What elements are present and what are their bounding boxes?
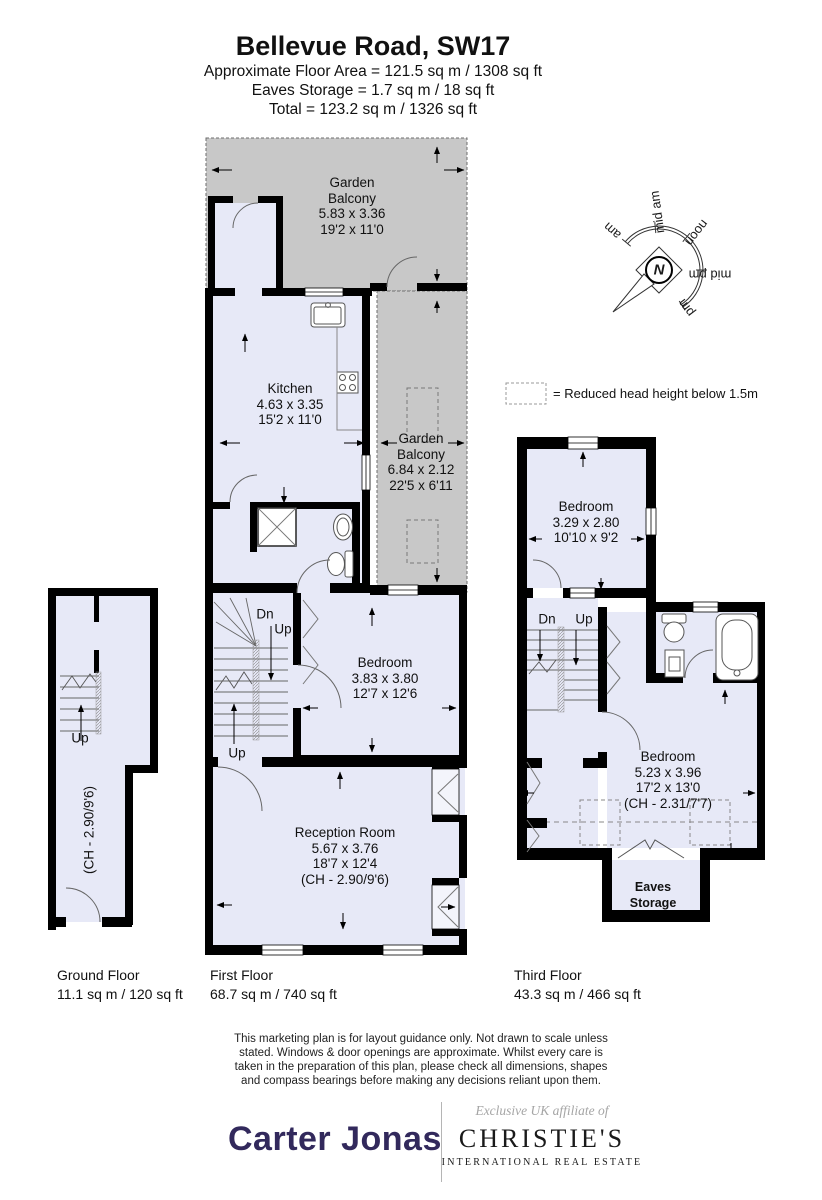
bathtub-icon (716, 614, 758, 680)
washbasin-icon-2 (665, 650, 684, 677)
toilet-icon-2 (662, 614, 686, 642)
disclaimer-line-4: and compass bearings before making any d… (241, 1074, 601, 1088)
north-indicator: N (654, 262, 665, 279)
page-title: Bellevue Road, SW17 (236, 31, 511, 62)
christies-logo: CHRISTIE'S (459, 1124, 625, 1154)
christies-subtitle: INTERNATIONAL REAL ESTATE (442, 1157, 643, 1168)
first-floor-caption: First Floor 68.7 sq m / 740 sq ft (210, 966, 337, 1004)
logo-divider (441, 1102, 442, 1182)
stair-label-dn: Dn (256, 607, 273, 622)
floorplan-page: Bellevue Road, SW17 Approximate Floor Ar… (0, 0, 822, 1200)
disclaimer-line-1: This marketing plan is for layout guidan… (234, 1032, 608, 1046)
carter-jonas-logo: Carter Jonas (228, 1120, 442, 1159)
total-area-line: Total = 123.2 sq m / 1326 sq ft (269, 101, 477, 119)
shower-icon (258, 508, 296, 546)
affiliate-text: Exclusive UK affiliate of (475, 1103, 608, 1119)
room-label-bedroom-small: Bedroom 3.29 x 2.80 10'10 x 9'2 (553, 499, 620, 546)
ground-stair-up: Up (71, 731, 88, 746)
ground-floor-plan (48, 588, 158, 930)
room-label-garden-balcony-side: Garden Balcony 6.84 x 2.12 22'5 x 6'11 (388, 431, 455, 493)
eaves-storage-label: Eaves Storage (630, 879, 677, 911)
room-label-kitchen: Kitchen 4.63 x 3.35 15'2 x 11'0 (257, 381, 324, 428)
room-label-garden-balcony-top: Garden Balcony 5.83 x 3.36 19'2 x 11'0 (319, 175, 386, 237)
floor-area-line: Approximate Floor Area = 121.5 sq m / 13… (204, 63, 542, 81)
eaves-storage-line: Eaves Storage = 1.7 sq m / 18 sq ft (252, 82, 495, 100)
kitchen-sink-icon (311, 303, 345, 327)
room-label-reception: Reception Room 5.67 x 3.76 18'7 x 12'4 (… (295, 825, 396, 887)
hob-icon (337, 372, 358, 393)
third-stair-up: Up (575, 612, 592, 627)
ground-floor-caption: Ground Floor 11.1 sq m / 120 sq ft (57, 966, 183, 1004)
stair-label-up-2: Up (228, 746, 245, 761)
third-stair-dn: Dn (538, 612, 555, 627)
disclaimer-line-3: taken in the preparation of this plan, p… (235, 1060, 608, 1074)
ground-ch-label: (CH - 2.90/9'6) (81, 786, 97, 874)
room-label-bedroom-first: Bedroom 3.83 x 3.80 12'7 x 12'6 (352, 655, 419, 702)
legend-swatch (506, 383, 546, 404)
room-label-bedroom-large: Bedroom 5.23 x 3.96 17'2 x 13'0 (CH - 2.… (624, 749, 712, 811)
toilet-icon (328, 551, 354, 577)
compass-label-mid-pm: mid pm (689, 268, 732, 283)
third-floor-caption: Third Floor 43.3 sq m / 466 sq ft (514, 966, 641, 1004)
washbasin-icon (334, 514, 353, 540)
stair-label-up: Up (274, 622, 291, 637)
disclaimer-line-2: stated. Windows & door openings are appr… (239, 1046, 603, 1060)
floorplan-drawing (0, 0, 822, 1200)
legend-text: = Reduced head height below 1.5m (553, 386, 758, 401)
